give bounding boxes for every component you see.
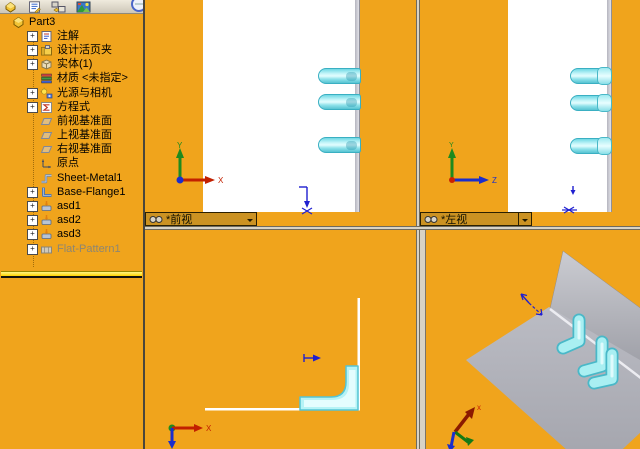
tree-item-lights-cameras[interactable]: + 光源与相机 bbox=[0, 86, 143, 100]
expand-box[interactable]: + bbox=[27, 59, 38, 70]
tree-item-label: asd1 bbox=[57, 201, 81, 212]
formed-pin-1-front[interactable] bbox=[318, 68, 361, 84]
tree-item-label: Part3 bbox=[29, 17, 55, 28]
top-view-geometry: X bbox=[145, 230, 416, 449]
tree-item-top-plane[interactable]: 上视基准面 bbox=[0, 129, 143, 143]
featuremanager-panel: Part3 + 注解 + bbox=[0, 0, 143, 449]
tree-item-label: 原点 bbox=[57, 158, 79, 169]
solidworks-window: Part3 + 注解 + bbox=[0, 0, 640, 449]
base-flange-icon bbox=[40, 186, 53, 199]
triad-x-label: X bbox=[206, 424, 212, 433]
propertymanager-tab-icon[interactable] bbox=[28, 1, 41, 13]
lights-cameras-icon bbox=[40, 87, 53, 100]
expand-box[interactable]: + bbox=[27, 45, 38, 56]
tree-item-right-plane[interactable]: 右视基准面 bbox=[0, 143, 143, 157]
form-tool-icon bbox=[40, 200, 53, 213]
displaymanager-tab-icon[interactable] bbox=[76, 1, 91, 13]
view-orientation-icon bbox=[149, 215, 163, 224]
origin-marker bbox=[297, 184, 319, 215]
tree-item-origin[interactable]: 原点 bbox=[0, 157, 143, 171]
equations-icon bbox=[40, 101, 53, 114]
expand-box[interactable]: + bbox=[27, 229, 38, 240]
expand-box[interactable]: + bbox=[27, 31, 38, 42]
tree-item-label: asd2 bbox=[57, 215, 81, 226]
dropdown-arrow-icon[interactable] bbox=[247, 219, 253, 225]
sheet-metal-icon bbox=[40, 172, 53, 185]
view-triad-front: Y X bbox=[168, 140, 230, 190]
tree-item-label: Flat-Pattern1 bbox=[57, 244, 121, 255]
material-icon bbox=[40, 72, 53, 85]
tree-item-formed-feature-1[interactable]: + asd1 bbox=[0, 199, 143, 213]
pin-foot-shadow bbox=[346, 98, 357, 107]
tree-item-formed-feature-2[interactable]: + asd2 bbox=[0, 214, 143, 228]
viewport-front[interactable]: Y X *前视 bbox=[145, 0, 416, 226]
tree-item-label: 设计活页夹 bbox=[57, 45, 112, 56]
view-orientation-label: *左视 bbox=[441, 211, 515, 226]
tree-item-label: 前视基准面 bbox=[57, 116, 112, 127]
tree-item-solid-bodies[interactable]: + 实体(1) bbox=[0, 58, 143, 72]
part-icon bbox=[12, 16, 25, 29]
origin-marker bbox=[521, 294, 542, 315]
design-binder-icon bbox=[40, 44, 53, 57]
tree-item-front-plane[interactable]: 前视基准面 bbox=[0, 114, 143, 128]
pin-foot-shadow bbox=[346, 72, 357, 81]
tree-item-label: 材质 <未指定> bbox=[57, 73, 128, 84]
feature-tree: Part3 + 注解 + bbox=[0, 15, 143, 449]
tree-item-material[interactable]: 材质 <未指定> bbox=[0, 72, 143, 86]
triad-z-label: Z bbox=[492, 176, 497, 185]
solid-bodies-icon bbox=[40, 58, 53, 71]
configurationmanager-tab-icon[interactable] bbox=[51, 1, 66, 13]
featuremanager-tab-icon[interactable] bbox=[3, 1, 18, 13]
pin-base-3[interactable] bbox=[597, 137, 612, 155]
zoom-circle-icon[interactable] bbox=[129, 0, 143, 13]
expand-box[interactable]: + bbox=[27, 102, 38, 113]
tree-item-label: 光源与相机 bbox=[57, 88, 112, 99]
horizontal-viewport-splitter[interactable] bbox=[145, 226, 640, 230]
viewport-isometric[interactable]: x bbox=[420, 230, 640, 449]
tree-item-base-flange[interactable]: + Base-Flange1 bbox=[0, 185, 143, 199]
formed-pin-2-front[interactable] bbox=[318, 94, 361, 110]
expand-box[interactable]: + bbox=[27, 244, 38, 255]
plane-icon bbox=[40, 115, 53, 128]
plane-icon bbox=[40, 143, 53, 156]
tree-item-label: 注解 bbox=[57, 31, 79, 42]
tree-item-part-root[interactable]: Part3 bbox=[0, 15, 143, 29]
dropdown-arrow-icon[interactable] bbox=[522, 219, 528, 225]
tree-item-label: 实体(1) bbox=[57, 59, 92, 70]
tree-item-label: Base-Flange1 bbox=[57, 187, 126, 198]
tree-item-sheet-metal[interactable]: Sheet-Metal1 bbox=[0, 171, 143, 185]
triad-y-label: Y bbox=[449, 142, 454, 149]
view-orientation-bar-left[interactable]: *左视 bbox=[420, 212, 532, 226]
view-orientation-bar-front[interactable]: *前视 bbox=[145, 212, 257, 226]
isometric-geometry: x bbox=[420, 230, 640, 449]
origin-icon bbox=[40, 157, 53, 170]
triad-x-label: X bbox=[218, 176, 224, 185]
annotations-icon bbox=[40, 30, 53, 43]
view-triad-left: Y Z bbox=[442, 140, 508, 190]
tree-item-label: asd3 bbox=[57, 229, 81, 240]
form-tool-icon bbox=[40, 214, 53, 227]
flat-pattern-icon bbox=[40, 243, 53, 256]
rollback-bar[interactable] bbox=[1, 271, 142, 278]
tree-item-label: 右视基准面 bbox=[57, 144, 112, 155]
expand-box[interactable]: + bbox=[27, 215, 38, 226]
pin-base-1[interactable] bbox=[597, 67, 612, 85]
expand-box[interactable]: + bbox=[27, 187, 38, 198]
origin-marker bbox=[560, 184, 586, 216]
tree-item-equations[interactable]: + 方程式 bbox=[0, 100, 143, 114]
tree-item-label: Sheet-Metal1 bbox=[57, 173, 122, 184]
triad-x-label: x bbox=[477, 403, 481, 412]
vertical-viewport-splitter[interactable] bbox=[416, 0, 420, 449]
view-triad-isometric: x bbox=[447, 403, 481, 449]
view-orientation-icon bbox=[424, 215, 438, 224]
tree-item-label: 上视基准面 bbox=[57, 130, 112, 141]
tree-item-design-binder[interactable]: + 设计活页夹 bbox=[0, 43, 143, 57]
expand-box[interactable]: + bbox=[27, 88, 38, 99]
pin-foot-shadow bbox=[346, 141, 357, 150]
panel-tab-bar bbox=[0, 0, 143, 14]
formed-pin-3-front[interactable] bbox=[318, 137, 361, 153]
origin-marker bbox=[304, 354, 321, 362]
form-tool-icon bbox=[40, 228, 53, 241]
tree-item-annotations[interactable]: + 注解 bbox=[0, 29, 143, 43]
view-orientation-label: *前视 bbox=[166, 211, 244, 226]
plane-icon bbox=[40, 129, 53, 142]
tree-item-flat-pattern[interactable]: + Flat-Pattern1 bbox=[0, 242, 143, 256]
tree-item-formed-feature-3[interactable]: + asd3 bbox=[0, 228, 143, 242]
pin-base-2[interactable] bbox=[597, 94, 612, 112]
tree-item-label: 方程式 bbox=[57, 102, 90, 113]
viewport-left-gutter bbox=[420, 230, 425, 449]
triad-y-label: Y bbox=[177, 141, 183, 150]
viewport-top[interactable]: X bbox=[145, 230, 416, 449]
viewport-left[interactable]: Y Z *左视 bbox=[420, 0, 640, 226]
view-triad-top: X bbox=[168, 424, 212, 449]
expand-box[interactable]: + bbox=[27, 201, 38, 212]
